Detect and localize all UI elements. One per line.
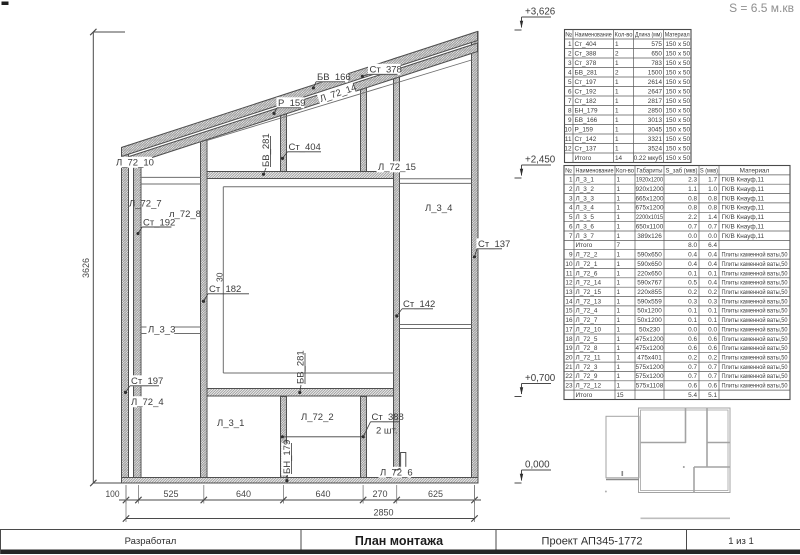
svg-text:1.7: 1.7 — [708, 177, 717, 184]
svg-text:50x230: 50x230 — [639, 326, 660, 333]
svg-text:Плиты каменной ваты,50: Плиты каменной ваты,50 — [722, 354, 788, 362]
svg-text:2.2: 2.2 — [688, 214, 697, 221]
svg-text:575: 575 — [651, 41, 662, 48]
svg-text:0.2: 0.2 — [708, 289, 717, 296]
svg-text:Материал: Материал — [665, 31, 690, 38]
svg-text:Плиты каменной ваты,50: Плиты каменной ваты,50 — [722, 260, 788, 268]
svg-text:Ст_137: Ст_137 — [575, 145, 597, 152]
svg-text:19: 19 — [565, 345, 573, 352]
svg-text:ГК/В Кнауф,11: ГК/В Кнауф,11 — [722, 205, 765, 212]
svg-text:0.4: 0.4 — [708, 252, 717, 259]
svg-text:Л_3_4: Л_3_4 — [576, 205, 595, 212]
svg-text:1: 1 — [617, 317, 621, 324]
svg-text:Л_3_3: Л_3_3 — [148, 325, 175, 336]
svg-text:0.0: 0.0 — [688, 326, 697, 333]
svg-text:1.1: 1.1 — [688, 186, 697, 193]
svg-text:1: 1 — [617, 270, 621, 277]
svg-text:0.3: 0.3 — [688, 298, 697, 305]
svg-text:6.4: 6.4 — [708, 242, 717, 249]
svg-text:1: 1 — [617, 308, 621, 315]
svg-text:675x1200: 675x1200 — [635, 205, 664, 212]
svg-text:Р_159: Р_159 — [278, 98, 305, 109]
svg-text:+2,450: +2,450 — [525, 155, 556, 166]
svg-text:1: 1 — [615, 107, 619, 114]
svg-text:1: 1 — [617, 214, 621, 221]
svg-text:17: 17 — [565, 326, 573, 333]
svg-text:2200x1015: 2200x1015 — [636, 214, 663, 221]
svg-text:1: 1 — [617, 252, 621, 259]
svg-text:Ст_142: Ст_142 — [575, 136, 597, 143]
svg-text:5: 5 — [569, 214, 573, 221]
svg-text:3: 3 — [568, 60, 572, 67]
svg-text:Плиты каменной ваты,50: Плиты каменной ваты,50 — [722, 335, 788, 343]
svg-text:2850: 2850 — [648, 107, 663, 114]
svg-text:18: 18 — [565, 336, 573, 343]
svg-text:Плиты каменной ваты,50: Плиты каменной ваты,50 — [722, 363, 788, 371]
svg-text:5: 5 — [568, 79, 572, 86]
svg-text:0.1: 0.1 — [688, 308, 697, 315]
svg-text:Плиты каменной ваты,50: Плиты каменной ваты,50 — [722, 382, 788, 390]
svg-text:Л_72_11: Л_72_11 — [576, 355, 601, 362]
svg-text:Наименование: Наименование — [575, 31, 612, 38]
svg-text:7: 7 — [569, 233, 573, 240]
svg-text:Плиты каменной ваты,50: Плиты каменной ваты,50 — [722, 325, 788, 333]
svg-text:270: 270 — [372, 489, 387, 499]
svg-text:ГК/В Кнауф,11: ГК/В Кнауф,11 — [722, 214, 765, 221]
svg-text:575x1108: 575x1108 — [636, 383, 664, 390]
svg-text:S_заб (мкв): S_заб (мкв) — [666, 166, 698, 174]
svg-text:150 x 50: 150 x 50 — [666, 117, 691, 124]
svg-text:6: 6 — [569, 224, 573, 231]
svg-text:575x1200: 575x1200 — [635, 364, 664, 371]
svg-text:0.4: 0.4 — [688, 261, 697, 268]
svg-text:2.3: 2.3 — [688, 177, 697, 184]
svg-text:11: 11 — [565, 136, 572, 143]
svg-text:2614: 2614 — [648, 79, 663, 86]
svg-text:1: 1 — [617, 224, 621, 231]
svg-text:1: 1 — [617, 326, 621, 333]
svg-text:Л_72_4: Л_72_4 — [576, 308, 598, 315]
svg-text:Л_3_2: Л_3_2 — [576, 186, 595, 193]
svg-text:150 x 50: 150 x 50 — [666, 107, 691, 114]
svg-text:0.7: 0.7 — [708, 224, 717, 231]
svg-text:0.6: 0.6 — [708, 345, 717, 352]
svg-text:15: 15 — [565, 308, 573, 315]
svg-text:Л_72_7: Л_72_7 — [129, 199, 162, 210]
svg-text:150 x 50: 150 x 50 — [666, 145, 691, 152]
svg-text:№: № — [565, 167, 572, 174]
svg-text:1: 1 — [615, 41, 619, 48]
svg-text:Ст_378: Ст_378 — [370, 65, 402, 76]
svg-text:590x559: 590x559 — [637, 298, 662, 305]
svg-text:+3,626: +3,626 — [525, 7, 556, 18]
svg-text:Л_72_13: Л_72_13 — [576, 298, 602, 305]
svg-text:Л_72_1: Л_72_1 — [576, 261, 598, 268]
svg-text:Л_3_1: Л_3_1 — [576, 177, 595, 184]
svg-text:150 x 50: 150 x 50 — [666, 136, 691, 143]
svg-text:475x1200: 475x1200 — [635, 345, 664, 352]
svg-text:1: 1 — [568, 41, 572, 48]
svg-text:1: 1 — [569, 177, 573, 184]
svg-text:7: 7 — [568, 98, 572, 105]
svg-text:1: 1 — [617, 195, 621, 202]
svg-text:150 x 50: 150 x 50 — [666, 98, 691, 105]
svg-text:Л_72_5: Л_72_5 — [576, 336, 598, 343]
svg-text:4: 4 — [569, 205, 573, 212]
svg-text:Л_72_4: Л_72_4 — [131, 397, 164, 408]
svg-text:Плиты каменной ваты,50: Плиты каменной ваты,50 — [722, 297, 788, 305]
svg-text:5.1: 5.1 — [708, 392, 717, 399]
svg-text:Наименование: Наименование — [576, 167, 614, 174]
svg-text:0.6: 0.6 — [688, 383, 697, 390]
svg-text:1: 1 — [617, 345, 621, 352]
svg-text:1: 1 — [617, 364, 621, 371]
svg-text:1: 1 — [617, 373, 621, 380]
svg-text:2 шт.: 2 шт. — [376, 426, 397, 437]
svg-text:1: 1 — [617, 177, 621, 184]
svg-text:ГК/В Кнауф,11: ГК/В Кнауф,11 — [722, 233, 765, 240]
svg-text:0.6: 0.6 — [688, 336, 697, 343]
svg-text:11: 11 — [566, 270, 573, 277]
svg-text:Проект АП345-1772: Проект АП345-1772 — [542, 536, 643, 548]
svg-text:Л_72_12: Л_72_12 — [576, 383, 602, 390]
svg-text:ГК/В Кнауф,11: ГК/В Кнауф,11 — [722, 186, 765, 193]
svg-text:2: 2 — [569, 186, 573, 193]
svg-text:21: 21 — [565, 364, 573, 371]
svg-text:Материал: Материал — [740, 167, 770, 174]
svg-text:640: 640 — [236, 489, 251, 499]
svg-text:0.1: 0.1 — [688, 270, 697, 277]
svg-text:150 x 50: 150 x 50 — [666, 41, 691, 48]
svg-text:Ст_404: Ст_404 — [575, 41, 597, 48]
svg-text:№: № — [565, 31, 572, 38]
svg-text:150 x 50: 150 x 50 — [666, 69, 691, 76]
svg-text:640: 640 — [315, 489, 330, 499]
svg-text:150 x 50: 150 x 50 — [666, 60, 691, 67]
svg-text:8: 8 — [568, 107, 572, 114]
svg-text:16: 16 — [565, 317, 573, 324]
svg-text:8.0: 8.0 — [688, 242, 697, 249]
svg-text:475x401: 475x401 — [637, 355, 662, 362]
svg-text:150 x 50: 150 x 50 — [666, 155, 691, 162]
svg-text:Л_72_3: Л_72_3 — [576, 364, 598, 371]
svg-text:Ст_192: Ст_192 — [575, 88, 597, 95]
svg-text:0.22 мкуб: 0.22 мкуб — [634, 154, 663, 162]
svg-text:1: 1 — [617, 205, 621, 212]
svg-text:Плиты каменной ваты,50: Плиты каменной ваты,50 — [722, 372, 788, 380]
svg-text:0.8: 0.8 — [708, 205, 717, 212]
svg-text:0.1: 0.1 — [708, 270, 717, 277]
svg-text:9: 9 — [569, 252, 573, 259]
svg-text:0.0: 0.0 — [708, 233, 717, 240]
svg-text:3045: 3045 — [648, 126, 663, 133]
svg-text:1: 1 — [615, 79, 619, 86]
svg-text:Л_72_2: Л_72_2 — [301, 412, 334, 423]
svg-text:0.1: 0.1 — [708, 308, 717, 315]
svg-text:Л_3_1: Л_3_1 — [217, 418, 244, 429]
svg-text:Л_72_8: Л_72_8 — [576, 345, 598, 352]
svg-text:4: 4 — [568, 69, 572, 76]
svg-text:0,000: 0,000 — [525, 460, 550, 471]
svg-text:1: 1 — [617, 261, 621, 268]
svg-text:0.8: 0.8 — [688, 205, 697, 212]
svg-text:0.6: 0.6 — [688, 345, 697, 352]
svg-text:1.4: 1.4 — [708, 214, 717, 221]
svg-text:S = 6.5 м.кв: S = 6.5 м.кв — [729, 1, 794, 15]
svg-text:2: 2 — [568, 50, 572, 57]
svg-text:650: 650 — [651, 50, 662, 57]
svg-text:Л_72_6: Л_72_6 — [576, 270, 598, 277]
svg-text:3321: 3321 — [648, 136, 663, 143]
svg-text:0.5: 0.5 — [688, 280, 697, 287]
svg-text:БВ_281: БВ_281 — [575, 69, 598, 76]
svg-text:1: 1 — [617, 336, 621, 343]
svg-text:0.4: 0.4 — [708, 280, 717, 287]
svg-text:0.0: 0.0 — [708, 326, 717, 333]
svg-text:0.6: 0.6 — [708, 336, 717, 343]
svg-text:Итого: Итого — [576, 392, 593, 399]
svg-text:0.7: 0.7 — [688, 373, 697, 380]
svg-text:2817: 2817 — [648, 98, 663, 105]
svg-text:Плиты каменной ваты,50: Плиты каменной ваты,50 — [722, 288, 788, 296]
svg-text:590x767: 590x767 — [637, 280, 662, 287]
svg-text:Л_72_9: Л_72_9 — [576, 373, 598, 380]
svg-text:6: 6 — [568, 88, 572, 95]
svg-text:Плиты каменной ваты,50: Плиты каменной ваты,50 — [722, 251, 788, 259]
svg-text:Л_3_4: Л_3_4 — [425, 203, 452, 214]
svg-text:50x1200: 50x1200 — [637, 308, 662, 315]
svg-text:100: 100 — [106, 489, 120, 499]
svg-text:150 x 50: 150 x 50 — [666, 79, 691, 86]
svg-text:3524: 3524 — [648, 145, 663, 152]
svg-text:3013: 3013 — [648, 117, 663, 124]
svg-text:150 x 50: 150 x 50 — [666, 88, 691, 95]
svg-text:13: 13 — [565, 289, 573, 296]
svg-text:Плиты каменной ваты,50: Плиты каменной ваты,50 — [722, 307, 788, 315]
svg-text:150 x 50: 150 x 50 — [666, 50, 691, 57]
svg-text:14: 14 — [615, 155, 623, 162]
svg-text:1: 1 — [617, 280, 621, 287]
svg-text:12: 12 — [564, 145, 572, 152]
svg-text:1: 1 — [617, 186, 621, 193]
svg-text:Л_72_2: Л_72_2 — [576, 252, 598, 259]
svg-text:7: 7 — [617, 242, 621, 249]
svg-text:0.7: 0.7 — [688, 224, 697, 231]
svg-text:Плиты каменной ваты,50: Плиты каменной ваты,50 — [722, 269, 788, 277]
svg-text:Габариты: Габариты — [637, 166, 663, 174]
svg-text:План монтажа: План монтажа — [355, 534, 444, 548]
svg-text:ГК/В Кнауф,11: ГК/В Кнауф,11 — [722, 195, 765, 202]
svg-text:10: 10 — [565, 261, 573, 268]
svg-text:0.7: 0.7 — [688, 364, 697, 371]
svg-text:ГК/В Кнауф,11: ГК/В Кнауф,11 — [722, 177, 765, 184]
svg-text:0.2: 0.2 — [688, 289, 697, 296]
svg-text:БВ_166: БВ_166 — [575, 117, 598, 124]
svg-text:475x1200: 475x1200 — [635, 336, 664, 343]
svg-text:1: 1 — [615, 145, 619, 152]
svg-text:БВ_166: БВ_166 — [317, 72, 351, 83]
svg-text:0.4: 0.4 — [708, 261, 717, 268]
svg-text:Р_159: Р_159 — [575, 126, 594, 133]
svg-text:625: 625 — [428, 489, 443, 499]
svg-text:920x1200: 920x1200 — [635, 186, 664, 193]
svg-text:Плиты каменной ваты,50: Плиты каменной ваты,50 — [722, 344, 788, 352]
svg-text:575x1200: 575x1200 — [635, 373, 664, 380]
svg-text:Ст_388: Ст_388 — [575, 50, 597, 57]
svg-text:0.8: 0.8 — [708, 195, 717, 202]
svg-text:50x1200: 50x1200 — [637, 317, 662, 324]
svg-text:0.6: 0.6 — [708, 383, 717, 390]
svg-text:+0,700: +0,700 — [525, 373, 556, 384]
svg-text:1: 1 — [615, 98, 619, 105]
svg-text:1: 1 — [617, 289, 621, 296]
svg-text:0.2: 0.2 — [708, 355, 717, 362]
svg-text:150 x 50: 150 x 50 — [666, 126, 691, 133]
svg-text:10: 10 — [564, 126, 572, 133]
svg-text:БН_179: БН_179 — [575, 107, 598, 114]
svg-text:30: 30 — [215, 272, 225, 282]
svg-text:9: 9 — [568, 117, 572, 124]
svg-text:1: 1 — [615, 117, 619, 124]
svg-text:220x855: 220x855 — [637, 289, 662, 296]
svg-text:1: 1 — [617, 233, 621, 240]
svg-text:Плиты каменной ваты,50: Плиты каменной ваты,50 — [722, 316, 788, 324]
svg-text:0.3: 0.3 — [708, 298, 717, 305]
svg-text:590x650: 590x650 — [637, 261, 662, 268]
svg-text:783: 783 — [651, 60, 662, 67]
svg-text:2850: 2850 — [373, 508, 393, 518]
svg-text:0.7: 0.7 — [708, 364, 717, 371]
svg-text:665x1200: 665x1200 — [635, 195, 664, 202]
svg-text:20: 20 — [565, 355, 573, 362]
svg-text:650x1100: 650x1100 — [636, 224, 664, 231]
svg-text:Л_3_6: Л_3_6 — [576, 224, 595, 231]
svg-text:Л_3_7: Л_3_7 — [576, 233, 595, 240]
svg-text:Ст_378: Ст_378 — [575, 60, 597, 67]
svg-text:0.4: 0.4 — [688, 252, 697, 259]
svg-text:5.4: 5.4 — [688, 392, 697, 399]
svg-text:3626: 3626 — [81, 258, 91, 278]
svg-text:3: 3 — [569, 195, 573, 202]
svg-text:Л_72_15: Л_72_15 — [378, 162, 416, 173]
svg-text:2: 2 — [615, 69, 619, 76]
svg-text:Л_3_3: Л_3_3 — [576, 195, 595, 202]
svg-text:1: 1 — [615, 60, 619, 67]
svg-text:22: 22 — [565, 373, 573, 380]
svg-text:0.8: 0.8 — [688, 195, 697, 202]
svg-text:Л_72_14: Л_72_14 — [576, 280, 602, 287]
svg-text:12: 12 — [565, 280, 573, 287]
svg-text:14: 14 — [565, 298, 573, 305]
svg-text:1: 1 — [615, 136, 619, 143]
svg-text:Л_3_5: Л_3_5 — [576, 214, 595, 221]
svg-text:15: 15 — [617, 392, 625, 399]
svg-text:1: 1 — [615, 88, 619, 95]
svg-text:Плиты каменной ваты,50: Плиты каменной ваты,50 — [722, 279, 788, 287]
svg-text:23: 23 — [565, 383, 573, 390]
svg-text:Л_72_6: Л_72_6 — [380, 468, 413, 479]
svg-text:1: 1 — [617, 383, 621, 390]
svg-text:Ст_182: Ст_182 — [575, 98, 597, 105]
svg-text:Разработал: Разработал — [125, 536, 177, 547]
svg-text:ГК/В Кнауф,11: ГК/В Кнауф,11 — [722, 224, 765, 231]
svg-text:0.7: 0.7 — [708, 373, 717, 380]
svg-text:0.2: 0.2 — [688, 355, 697, 362]
svg-text:0.1: 0.1 — [688, 317, 697, 324]
svg-text:1.0: 1.0 — [708, 186, 717, 193]
svg-text:Итого: Итого — [575, 155, 592, 162]
svg-text:2: 2 — [615, 50, 619, 57]
svg-text:1500: 1500 — [648, 69, 663, 76]
svg-text:0.1: 0.1 — [708, 317, 717, 324]
svg-text:Л_72_10: Л_72_10 — [576, 326, 602, 333]
svg-text:Ст_197: Ст_197 — [575, 79, 597, 86]
svg-text:Кол-во: Кол-во — [615, 31, 633, 38]
svg-text:S (мкв): S (мкв) — [700, 167, 718, 174]
svg-text:Длина (мм): Длина (мм) — [635, 31, 662, 38]
svg-text:1 из 1: 1 из 1 — [728, 536, 754, 547]
svg-text:525: 525 — [163, 489, 178, 499]
svg-text:0.0: 0.0 — [688, 233, 697, 240]
svg-text:Итого: Итого — [576, 242, 593, 249]
svg-text:Л_72_10: Л_72_10 — [116, 158, 154, 169]
svg-text:220x650: 220x650 — [637, 270, 662, 277]
svg-text:1: 1 — [615, 126, 619, 133]
svg-text:Л_72_7: Л_72_7 — [576, 317, 598, 324]
svg-text:Л_72_15: Л_72_15 — [576, 289, 602, 296]
svg-text:1: 1 — [617, 298, 621, 305]
svg-text:2647: 2647 — [648, 88, 663, 95]
svg-text:389x126: 389x126 — [637, 233, 662, 240]
svg-text:590x650: 590x650 — [637, 252, 662, 259]
svg-text:1920x1200: 1920x1200 — [636, 177, 663, 184]
svg-text:1: 1 — [617, 355, 621, 362]
svg-text:Кол-во: Кол-во — [616, 167, 634, 174]
